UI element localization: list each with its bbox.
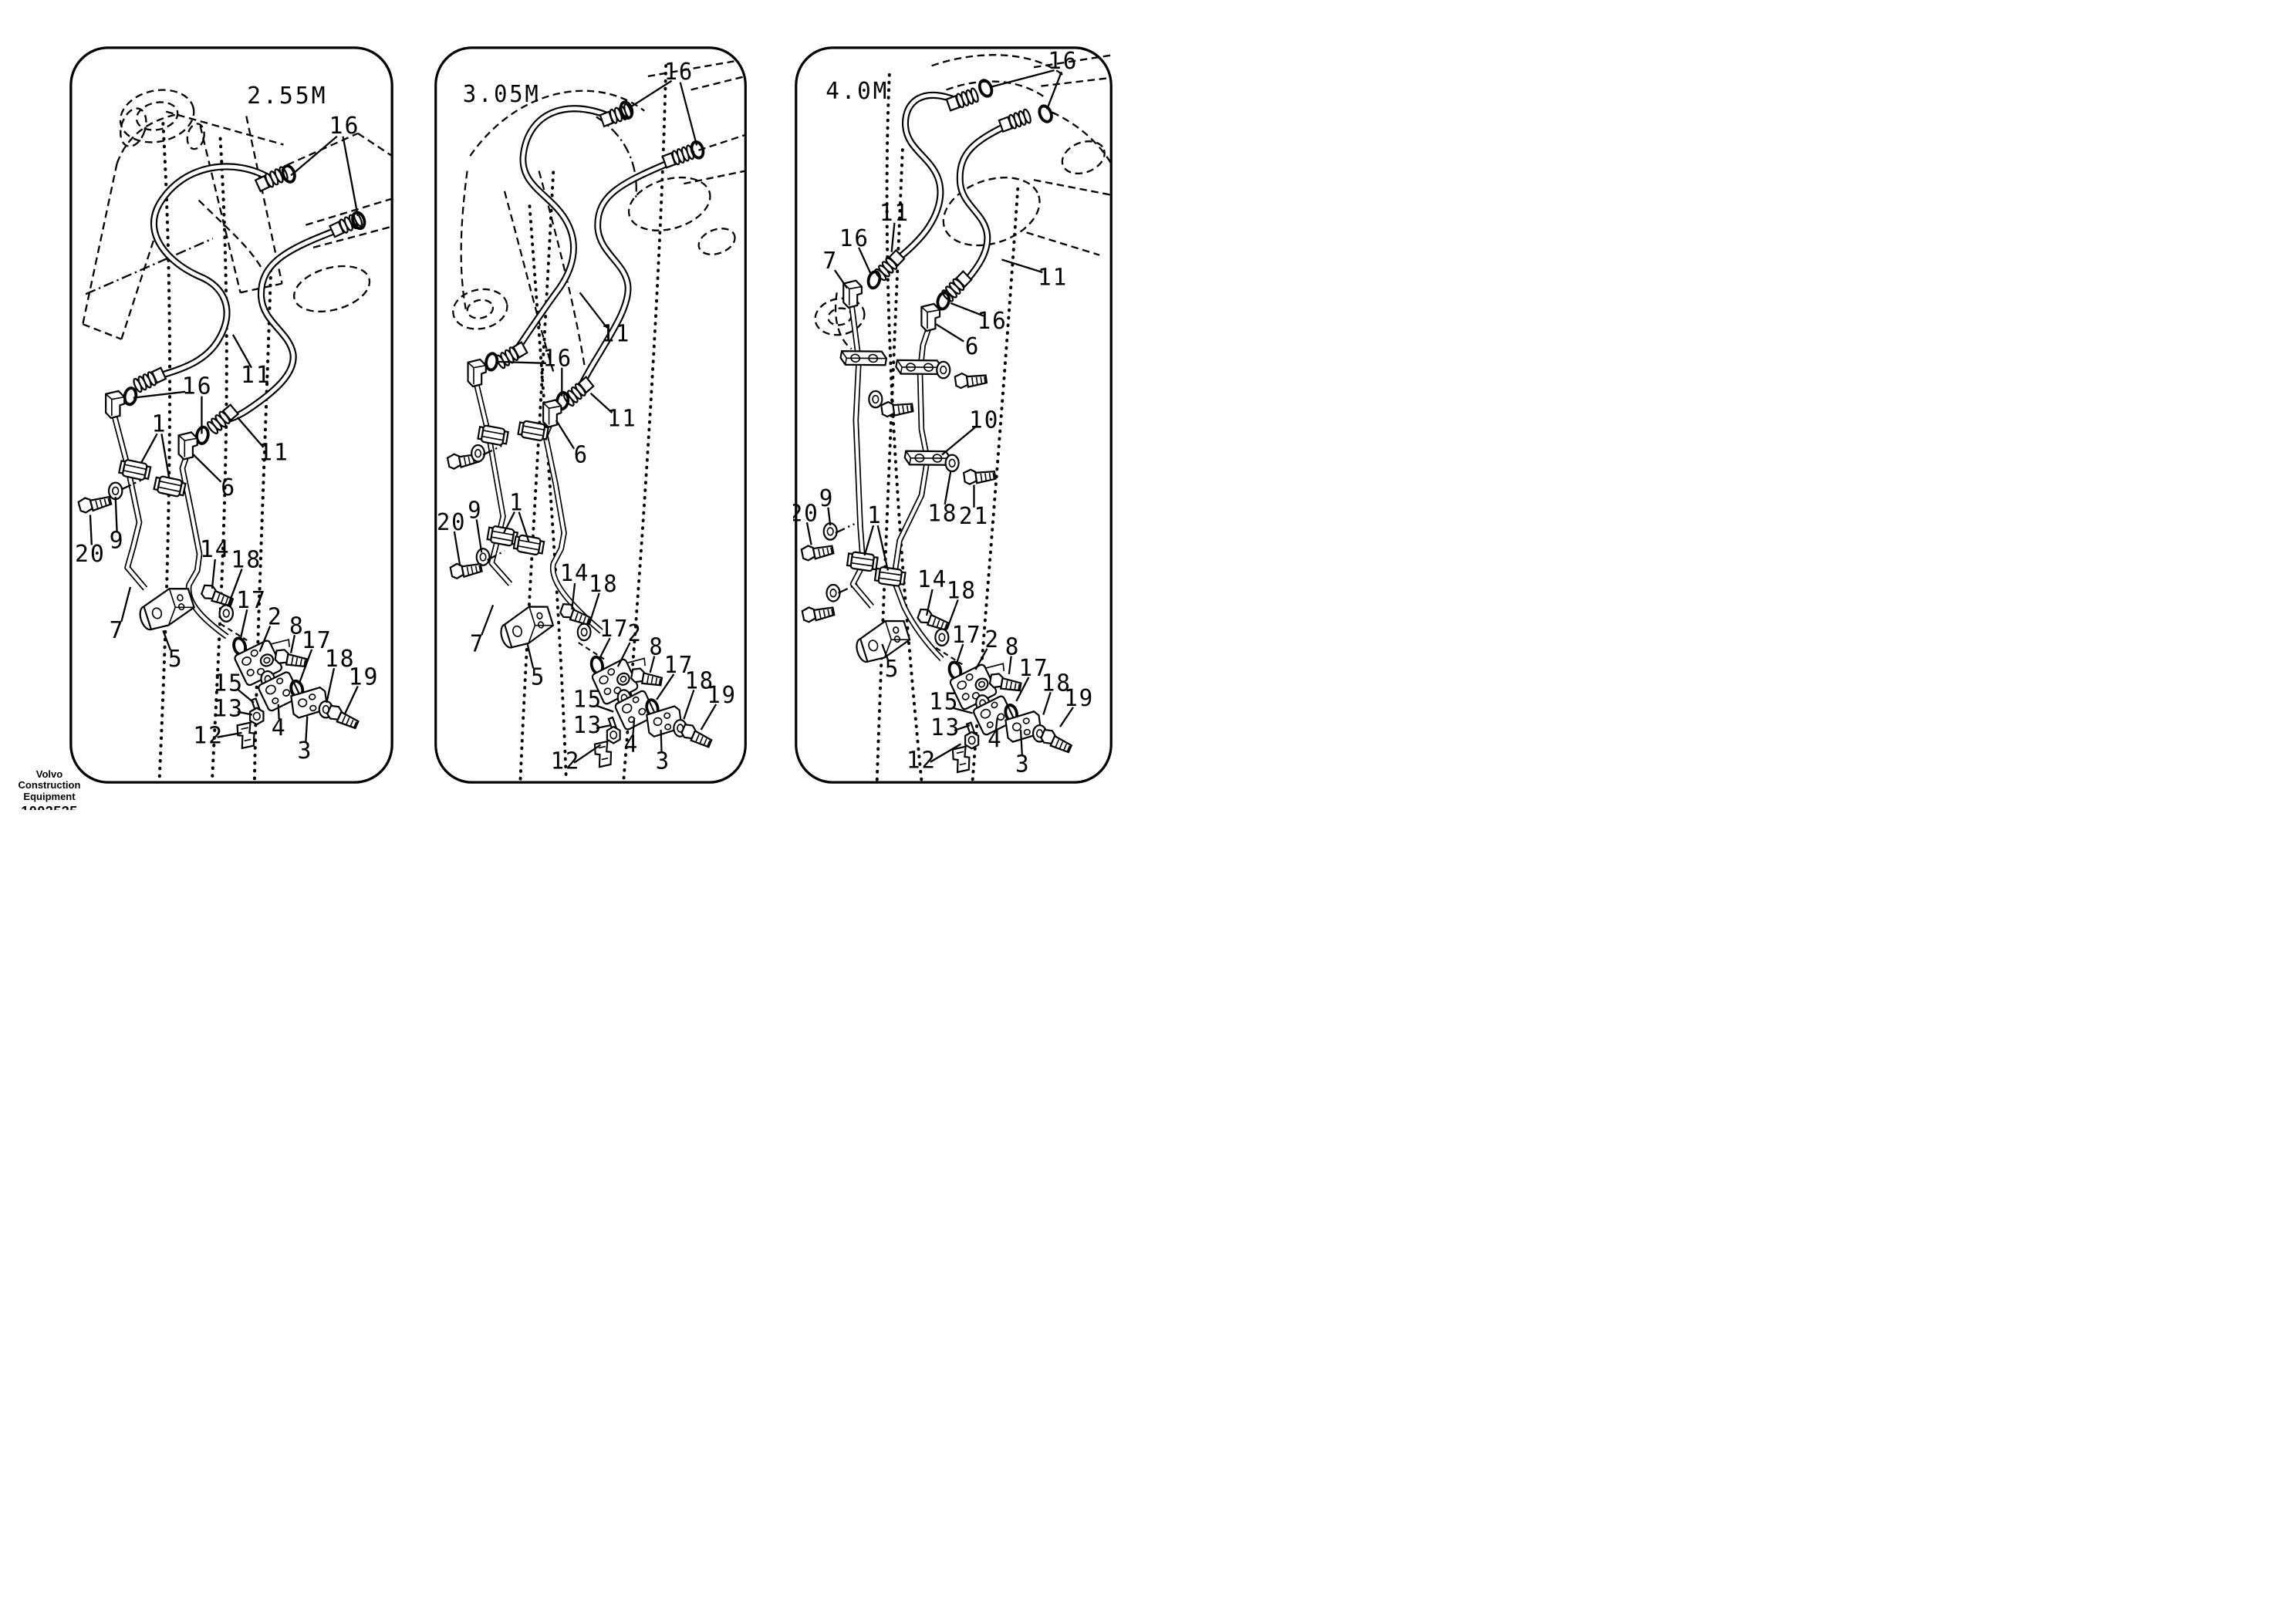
- callout-label-9: 9: [819, 484, 835, 512]
- callout-leader-18: [684, 690, 694, 719]
- callout-layer: 1611167111661018212091141817281718191513…: [793, 48, 1094, 778]
- callout-label-15: 15: [929, 688, 959, 716]
- hoses: [866, 79, 1054, 311]
- callout-leader-11: [892, 223, 895, 252]
- callout-label-2: 2: [984, 626, 1000, 653]
- callout-leader-1: [161, 434, 169, 477]
- callout-leader-16: [680, 83, 697, 146]
- callout-label-11: 11: [241, 362, 272, 389]
- callout-leader-6: [193, 454, 221, 482]
- panel-boom-4-0m: 4.0M 16111671116610182120911418172817181…: [793, 45, 1114, 785]
- callout-label-11: 11: [258, 439, 289, 466]
- callout-label-16: 16: [664, 58, 694, 85]
- callout-leader-1: [865, 525, 873, 555]
- callout-label-11: 11: [601, 320, 630, 347]
- callout-label-12: 12: [907, 747, 937, 775]
- callout-label-21: 21: [959, 503, 989, 531]
- callout-label-12: 12: [551, 748, 580, 775]
- panel-boom-2-55m: 2.55M 1611161161920751418172817181915131…: [68, 45, 395, 785]
- callout-leader-11: [1001, 259, 1042, 272]
- callout-label-13: 13: [213, 695, 244, 722]
- callout-leader-9: [477, 519, 482, 552]
- callout-leader-16: [343, 137, 358, 216]
- callout-label-16: 16: [977, 308, 1008, 336]
- callout-label-15: 15: [213, 670, 244, 697]
- callout-label-18: 18: [947, 577, 977, 605]
- callout-label-11: 11: [880, 199, 910, 227]
- callout-label-13: 13: [930, 714, 961, 741]
- callout-label-8: 8: [649, 633, 663, 660]
- callout-label-16: 16: [839, 225, 869, 253]
- callout-label-17: 17: [236, 587, 267, 614]
- callout-label-4: 4: [272, 715, 287, 742]
- callout-label-20: 20: [437, 508, 466, 535]
- callout-label-19: 19: [349, 663, 380, 690]
- callout-label-5: 5: [885, 655, 900, 683]
- panel-title: 2.55M: [247, 83, 327, 110]
- callout-leader-18: [589, 593, 599, 625]
- callout-label-4: 4: [624, 731, 639, 758]
- document-number: 1003535: [11, 804, 88, 810]
- callout-label-17: 17: [951, 622, 981, 650]
- callout-label-11: 11: [607, 405, 636, 432]
- callout-leader-6: [556, 420, 574, 449]
- panel-boom-3-05m: 3.05M 1611161161920751418172817181915131…: [433, 45, 748, 785]
- callout-label-6: 6: [965, 333, 981, 361]
- callout-label-2: 2: [268, 604, 283, 631]
- callout-leader-1: [878, 525, 888, 570]
- footer: Volvo Construction Equipment 1003535: [11, 769, 88, 810]
- callout-label-10: 10: [969, 407, 999, 434]
- callout-label-14: 14: [917, 566, 947, 594]
- callout-label-16: 16: [329, 113, 360, 140]
- callout-label-20: 20: [75, 541, 106, 568]
- callout-label-16: 16: [182, 373, 213, 400]
- callout-label-17: 17: [599, 616, 629, 643]
- callout-label-8: 8: [1005, 633, 1021, 661]
- callout-label-7: 7: [470, 630, 485, 657]
- callout-label-16: 16: [1048, 48, 1078, 76]
- callout-leader-18: [326, 668, 334, 703]
- callout-label-16: 16: [543, 345, 572, 372]
- callout-leader-1: [141, 434, 157, 462]
- callout-label-7: 7: [110, 617, 125, 644]
- panel-title: 3.05M: [463, 80, 541, 107]
- callout-label-20: 20: [793, 500, 819, 528]
- callout-label-18: 18: [231, 547, 262, 574]
- callout-label-6: 6: [574, 441, 589, 468]
- callout-label-5: 5: [531, 663, 545, 690]
- page-root: 2.55M 1611161161920751418172817181915131…: [0, 0, 1148, 810]
- callout-leader-16: [1047, 72, 1062, 110]
- callout-label-14: 14: [200, 536, 231, 563]
- callout-label-3: 3: [297, 737, 312, 764]
- callout-label-19: 19: [1064, 684, 1094, 712]
- callout-label-1: 1: [509, 489, 524, 516]
- callout-label-13: 13: [573, 711, 603, 738]
- brand-name-line1: Volvo Construction: [11, 769, 88, 791]
- callout-leader-9: [116, 497, 117, 532]
- callout-label-15: 15: [573, 686, 603, 713]
- hoses: [485, 100, 705, 410]
- callout-leader-16: [133, 392, 185, 398]
- callout-label-18: 18: [927, 500, 957, 528]
- brand-name-line2: Equipment: [11, 791, 88, 802]
- callout-label-19: 19: [707, 681, 736, 708]
- callout-leader-6: [936, 324, 964, 341]
- callout-label-1: 1: [867, 502, 883, 530]
- callout-label-6: 6: [221, 474, 236, 501]
- callout-leader-14: [212, 559, 215, 589]
- callout-label-9: 9: [468, 497, 482, 524]
- callout-label-3: 3: [1015, 751, 1031, 778]
- callout-leader-16: [991, 70, 1054, 86]
- hoses: [123, 164, 366, 444]
- callout-label-18: 18: [589, 570, 618, 597]
- callout-leader-16: [291, 137, 337, 176]
- callout-label-2: 2: [628, 619, 643, 646]
- callout-label-9: 9: [110, 527, 125, 554]
- callout-label-11: 11: [1038, 264, 1068, 292]
- callout-leader-7: [121, 587, 130, 622]
- callout-label-3: 3: [656, 748, 670, 775]
- callout-leader-20: [454, 532, 460, 566]
- callout-label-5: 5: [168, 646, 184, 673]
- panel-title: 4.0M: [826, 78, 889, 106]
- callout-label-1: 1: [152, 410, 167, 437]
- callout-label-4: 4: [988, 726, 1003, 754]
- callout-label-12: 12: [193, 722, 224, 749]
- callout-label-7: 7: [822, 248, 838, 275]
- callout-label-14: 14: [560, 560, 589, 587]
